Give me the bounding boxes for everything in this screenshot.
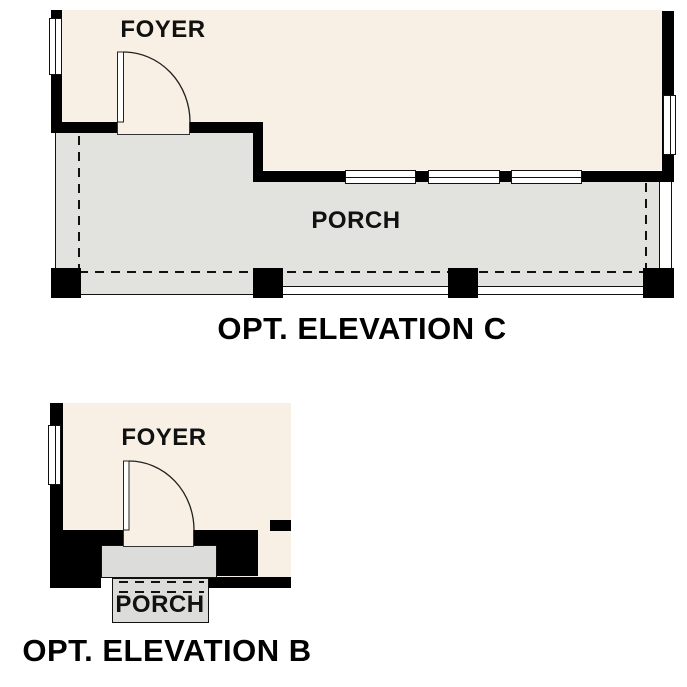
foyer-floor [263, 10, 662, 170]
roof-overhang-dashed-line [645, 183, 647, 272]
door-opening [117, 122, 190, 135]
wall [209, 577, 291, 588]
wall [50, 576, 101, 588]
porch-post [253, 268, 283, 298]
roof-overhang-dashed-line [79, 271, 646, 273]
porch-label: PORCH [115, 591, 204, 619]
plan-title: OPT. ELEVATION B [22, 633, 311, 669]
porch-label: PORCH [311, 207, 400, 235]
porch-edge-band [659, 182, 672, 268]
door-opening [123, 530, 194, 547]
roof-overhang-dashed-line [78, 136, 80, 272]
foyer-label: FOYER [120, 16, 205, 44]
porch-post [643, 268, 674, 298]
window [428, 170, 500, 184]
window [511, 170, 582, 184]
porch-step-dashed-line [119, 581, 204, 583]
porch-post [448, 268, 478, 298]
porch-edge-line [55, 133, 57, 268]
window [345, 170, 416, 184]
porch-post [51, 268, 81, 298]
wall [270, 520, 291, 531]
window [663, 95, 676, 155]
window [48, 425, 61, 485]
floorplan-canvas: FOYER PORCH OPT. ELEVATION C FOYER PORCH… [0, 0, 687, 687]
plan-title: OPT. ELEVATION C [217, 311, 506, 347]
window [49, 18, 62, 75]
stoop [101, 545, 217, 578]
foyer-label: FOYER [121, 424, 206, 452]
